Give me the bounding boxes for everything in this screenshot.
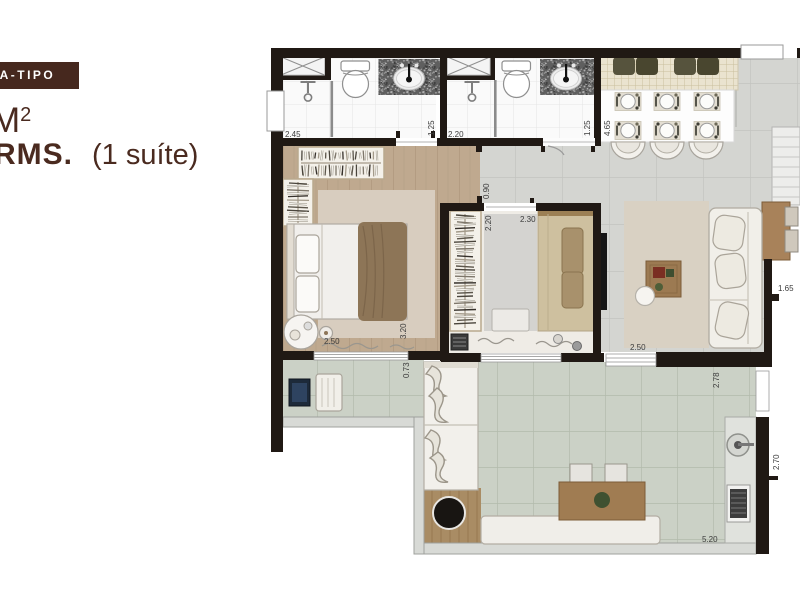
svg-text:2.30: 2.30 xyxy=(520,215,536,224)
svg-text:2.70: 2.70 xyxy=(772,454,781,470)
svg-text:1.25: 1.25 xyxy=(583,120,592,136)
svg-text:2.78: 2.78 xyxy=(712,372,721,388)
svg-text:3.20: 3.20 xyxy=(399,323,408,339)
svg-text:5.20: 5.20 xyxy=(702,535,718,544)
svg-text:4.65: 4.65 xyxy=(603,120,612,136)
svg-text:2.50: 2.50 xyxy=(324,337,340,346)
svg-text:0.90: 0.90 xyxy=(482,183,491,199)
svg-text:0.73: 0.73 xyxy=(402,362,411,378)
svg-text:1.25: 1.25 xyxy=(427,120,436,136)
svg-text:2.50: 2.50 xyxy=(630,343,646,352)
svg-text:2.20: 2.20 xyxy=(448,130,464,139)
svg-text:1.65: 1.65 xyxy=(778,284,794,293)
svg-text:2.20: 2.20 xyxy=(484,215,493,231)
svg-text:2.45: 2.45 xyxy=(285,130,301,139)
